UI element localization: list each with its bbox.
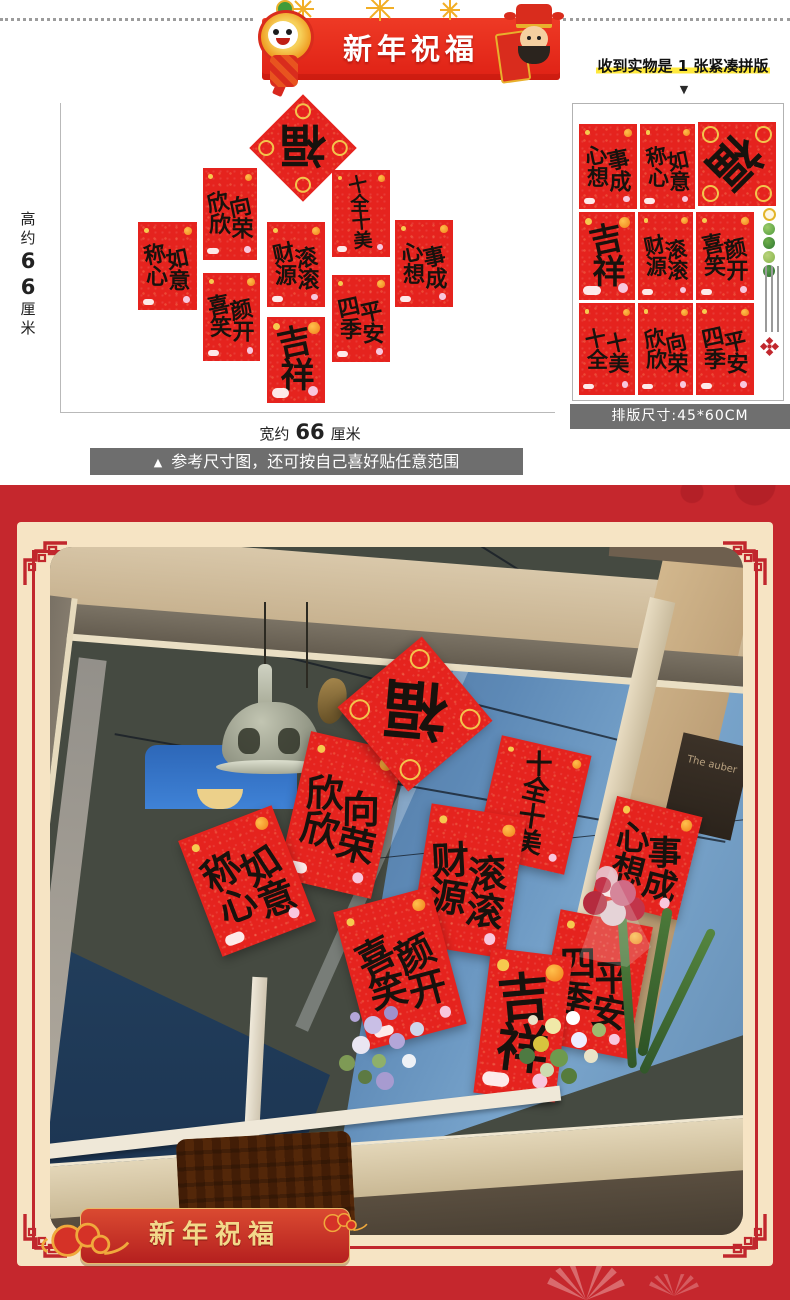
sticker-tile-jixiang: 吉祥 [579, 212, 635, 300]
tile-decoration [623, 309, 630, 316]
sticker-tile-chenxin: 称心如意 [640, 124, 695, 209]
tile-decoration [207, 248, 218, 254]
tile-decoration [378, 175, 384, 181]
fu-character: 福 [280, 115, 326, 181]
sheet-caption: 排版尺寸:45*60CM [570, 404, 790, 429]
sticker-tile-xixiao: 喜笑颜开 [203, 273, 260, 361]
firework-icon [366, 0, 394, 21]
tile-decoration [683, 129, 690, 136]
tile-decoration [208, 174, 213, 179]
sticker-tile-siji: 四季平安 [332, 275, 390, 362]
gold-medallion-icon [755, 126, 772, 143]
tile-decoration [438, 815, 448, 825]
tile-decoration [701, 289, 712, 295]
tile-decoration [184, 227, 191, 234]
product-detail-page: { "top_banner": { "title": "新年祝福" }, "re… [0, 0, 790, 1300]
tile-decoration [619, 217, 630, 228]
cloud-icon [38, 1213, 130, 1261]
tile-decoration [183, 296, 190, 303]
photo-section: The auber 欣欣向荣十全十美称心如意心想事成财源滚滚喜笑颜开四季平安吉祥… [0, 485, 790, 1300]
veggie-icon [763, 251, 775, 263]
tile-decoration [644, 309, 649, 314]
height-label: 高约 66 厘米 [14, 210, 42, 338]
veggie-icon [763, 223, 775, 235]
flower-bouquet [595, 877, 611, 893]
product-sheet: 心想事成称心如意福吉祥财源滚滚喜笑颜开十全十美欣欣向荣四季平安 [572, 103, 784, 401]
tile-decoration [308, 386, 318, 396]
tile-decoration [377, 280, 384, 287]
tile-decoration [622, 805, 631, 814]
tile-decoration [680, 287, 686, 293]
cream-panel: The auber 欣欣向荣十全十美称心如意心想事成财源滚滚喜笑颜开四季平安吉祥… [17, 522, 773, 1266]
tile-decoration [702, 309, 707, 314]
sticker-tile-xinxiang: 心想事成 [579, 124, 637, 209]
tile-decoration [644, 218, 649, 223]
tile-decoration [440, 225, 447, 232]
tile-decoration [346, 917, 356, 927]
tile-decoration [411, 897, 427, 913]
tile-decoration [247, 278, 254, 285]
sticker-tile-chenxin: 称心如意 [138, 222, 197, 310]
tile-decoration [622, 381, 628, 387]
ray-fan-icon [540, 1266, 632, 1300]
width-measure-line [60, 412, 555, 413]
tile-decoration [646, 130, 651, 135]
tile-decoration [702, 218, 707, 223]
tile-decoration [584, 198, 595, 204]
tile-decoration [337, 351, 348, 357]
dotted-divider [563, 18, 790, 21]
sticker-tile-caiyuan: 财源滚滚 [267, 222, 325, 307]
tile-decoration [273, 228, 278, 233]
tile-decoration [209, 279, 214, 284]
tile-decoration [644, 198, 655, 204]
tile-decoration [272, 296, 283, 302]
gold-medallion-icon [329, 137, 352, 160]
gold-medallion-icon [456, 704, 485, 733]
tile-decoration [623, 196, 630, 203]
tile-decoration [740, 381, 747, 388]
tile-decoration [143, 299, 154, 305]
sticker-tile-jixiang: 吉祥 [267, 317, 325, 403]
tile-decoration [144, 228, 149, 233]
tile-decoration [312, 227, 319, 234]
window-photo: The auber 欣欣向荣十全十美称心如意心想事成财源滚滚喜笑颜开四季平安吉祥… [50, 547, 743, 1235]
gold-medallion-icon [702, 185, 719, 202]
received-note: 收到实物是 1 张紧凑拼版 [578, 55, 788, 76]
width-label: 宽约66厘米 [160, 420, 460, 444]
sticker-tile-xinxin: 欣欣向荣 [638, 303, 693, 395]
tile-decoration [585, 309, 590, 314]
firework-icon [440, 0, 460, 20]
tile-decoration [741, 309, 748, 316]
tile-decoration [254, 815, 271, 832]
height-measure-line [60, 103, 61, 412]
sticker-tile-fu: 福 [698, 122, 776, 206]
tile-decoration [247, 347, 254, 354]
tile-decoration [481, 1070, 510, 1088]
tile-decoration [681, 217, 688, 224]
tile-decoration [351, 871, 365, 885]
dotted-divider [0, 18, 253, 21]
tile-decoration [272, 388, 290, 398]
tile-decoration [401, 226, 406, 231]
tile-decoration [338, 281, 343, 286]
tile-decoration [191, 843, 202, 854]
tile-decoration [497, 959, 510, 972]
tile-decoration [338, 176, 342, 180]
tile-decoration [438, 1005, 452, 1019]
gold-medallion-icon [755, 185, 772, 202]
gold-medallion-icon [345, 695, 374, 724]
veggie-icon [763, 237, 775, 249]
tile-decoration [377, 244, 383, 250]
tile-decoration [618, 283, 628, 293]
sticker-tile-siji: 四季平安 [696, 303, 754, 395]
fu-character: 福 [379, 665, 451, 762]
ray-fan-icon [648, 1272, 700, 1298]
tile-decoration [701, 383, 712, 389]
flower-cluster [350, 1012, 360, 1022]
tile-decoration [308, 322, 320, 334]
tile-decoration [571, 759, 582, 770]
god-of-wealth-icon [496, 4, 574, 86]
tile-decoration [502, 823, 517, 838]
tile-decoration [373, 1024, 395, 1039]
caption-banner: ▲参考尺寸图，还可按自己喜好贴任意范围 [90, 448, 523, 475]
gold-medallion-icon [255, 137, 278, 160]
gold-medallion-icon [702, 126, 719, 143]
sticker-tile-xixiao: 喜笑颜开 [696, 212, 754, 300]
tile-decoration [400, 296, 411, 302]
sticker-tile-xinxiang: 心想事成 [395, 220, 453, 307]
tile-decoration [311, 294, 318, 301]
lion-dancer-icon [250, 0, 320, 88]
tile-decoration [681, 309, 688, 316]
tile-decoration [608, 1033, 621, 1046]
tile-decoration [439, 293, 446, 300]
up-triangle-icon: ▲ [154, 456, 162, 469]
sticker-tile-shiquan: 十全十美 [579, 303, 635, 395]
tile-decoration [245, 174, 252, 181]
cloud-icon [316, 1207, 368, 1235]
tile-decoration [508, 746, 515, 753]
veggie-icon [763, 208, 776, 221]
knot-icon [760, 337, 779, 356]
tile-decoration [583, 286, 600, 295]
tile-decoration [548, 853, 558, 863]
sticker-tile-caiyuan: 财源滚滚 [638, 212, 693, 300]
tile-decoration [585, 130, 590, 135]
product-info-lines [765, 266, 779, 332]
tile-decoration [624, 129, 631, 136]
tile-decoration [337, 246, 347, 251]
tile-decoration [642, 384, 653, 390]
tile-decoration [682, 196, 688, 202]
tile-decoration [583, 384, 594, 390]
tile-decoration [244, 246, 251, 253]
flower-cluster [528, 1015, 538, 1025]
tile-decoration [740, 286, 747, 293]
tile-decoration [567, 920, 576, 929]
sticker-tile-shiquan: 十全十美 [332, 170, 390, 257]
tile-decoration [741, 217, 748, 224]
tile-decoration [680, 381, 686, 387]
tile-decoration [376, 348, 383, 355]
tile-decoration [642, 289, 653, 295]
down-arrow-icon: ▼ [672, 83, 696, 96]
sticker-tile-xinxin: 欣欣向荣 [203, 168, 257, 260]
tile-decoration [316, 744, 326, 754]
tile-decoration [208, 350, 219, 356]
tile-decoration [224, 930, 246, 947]
